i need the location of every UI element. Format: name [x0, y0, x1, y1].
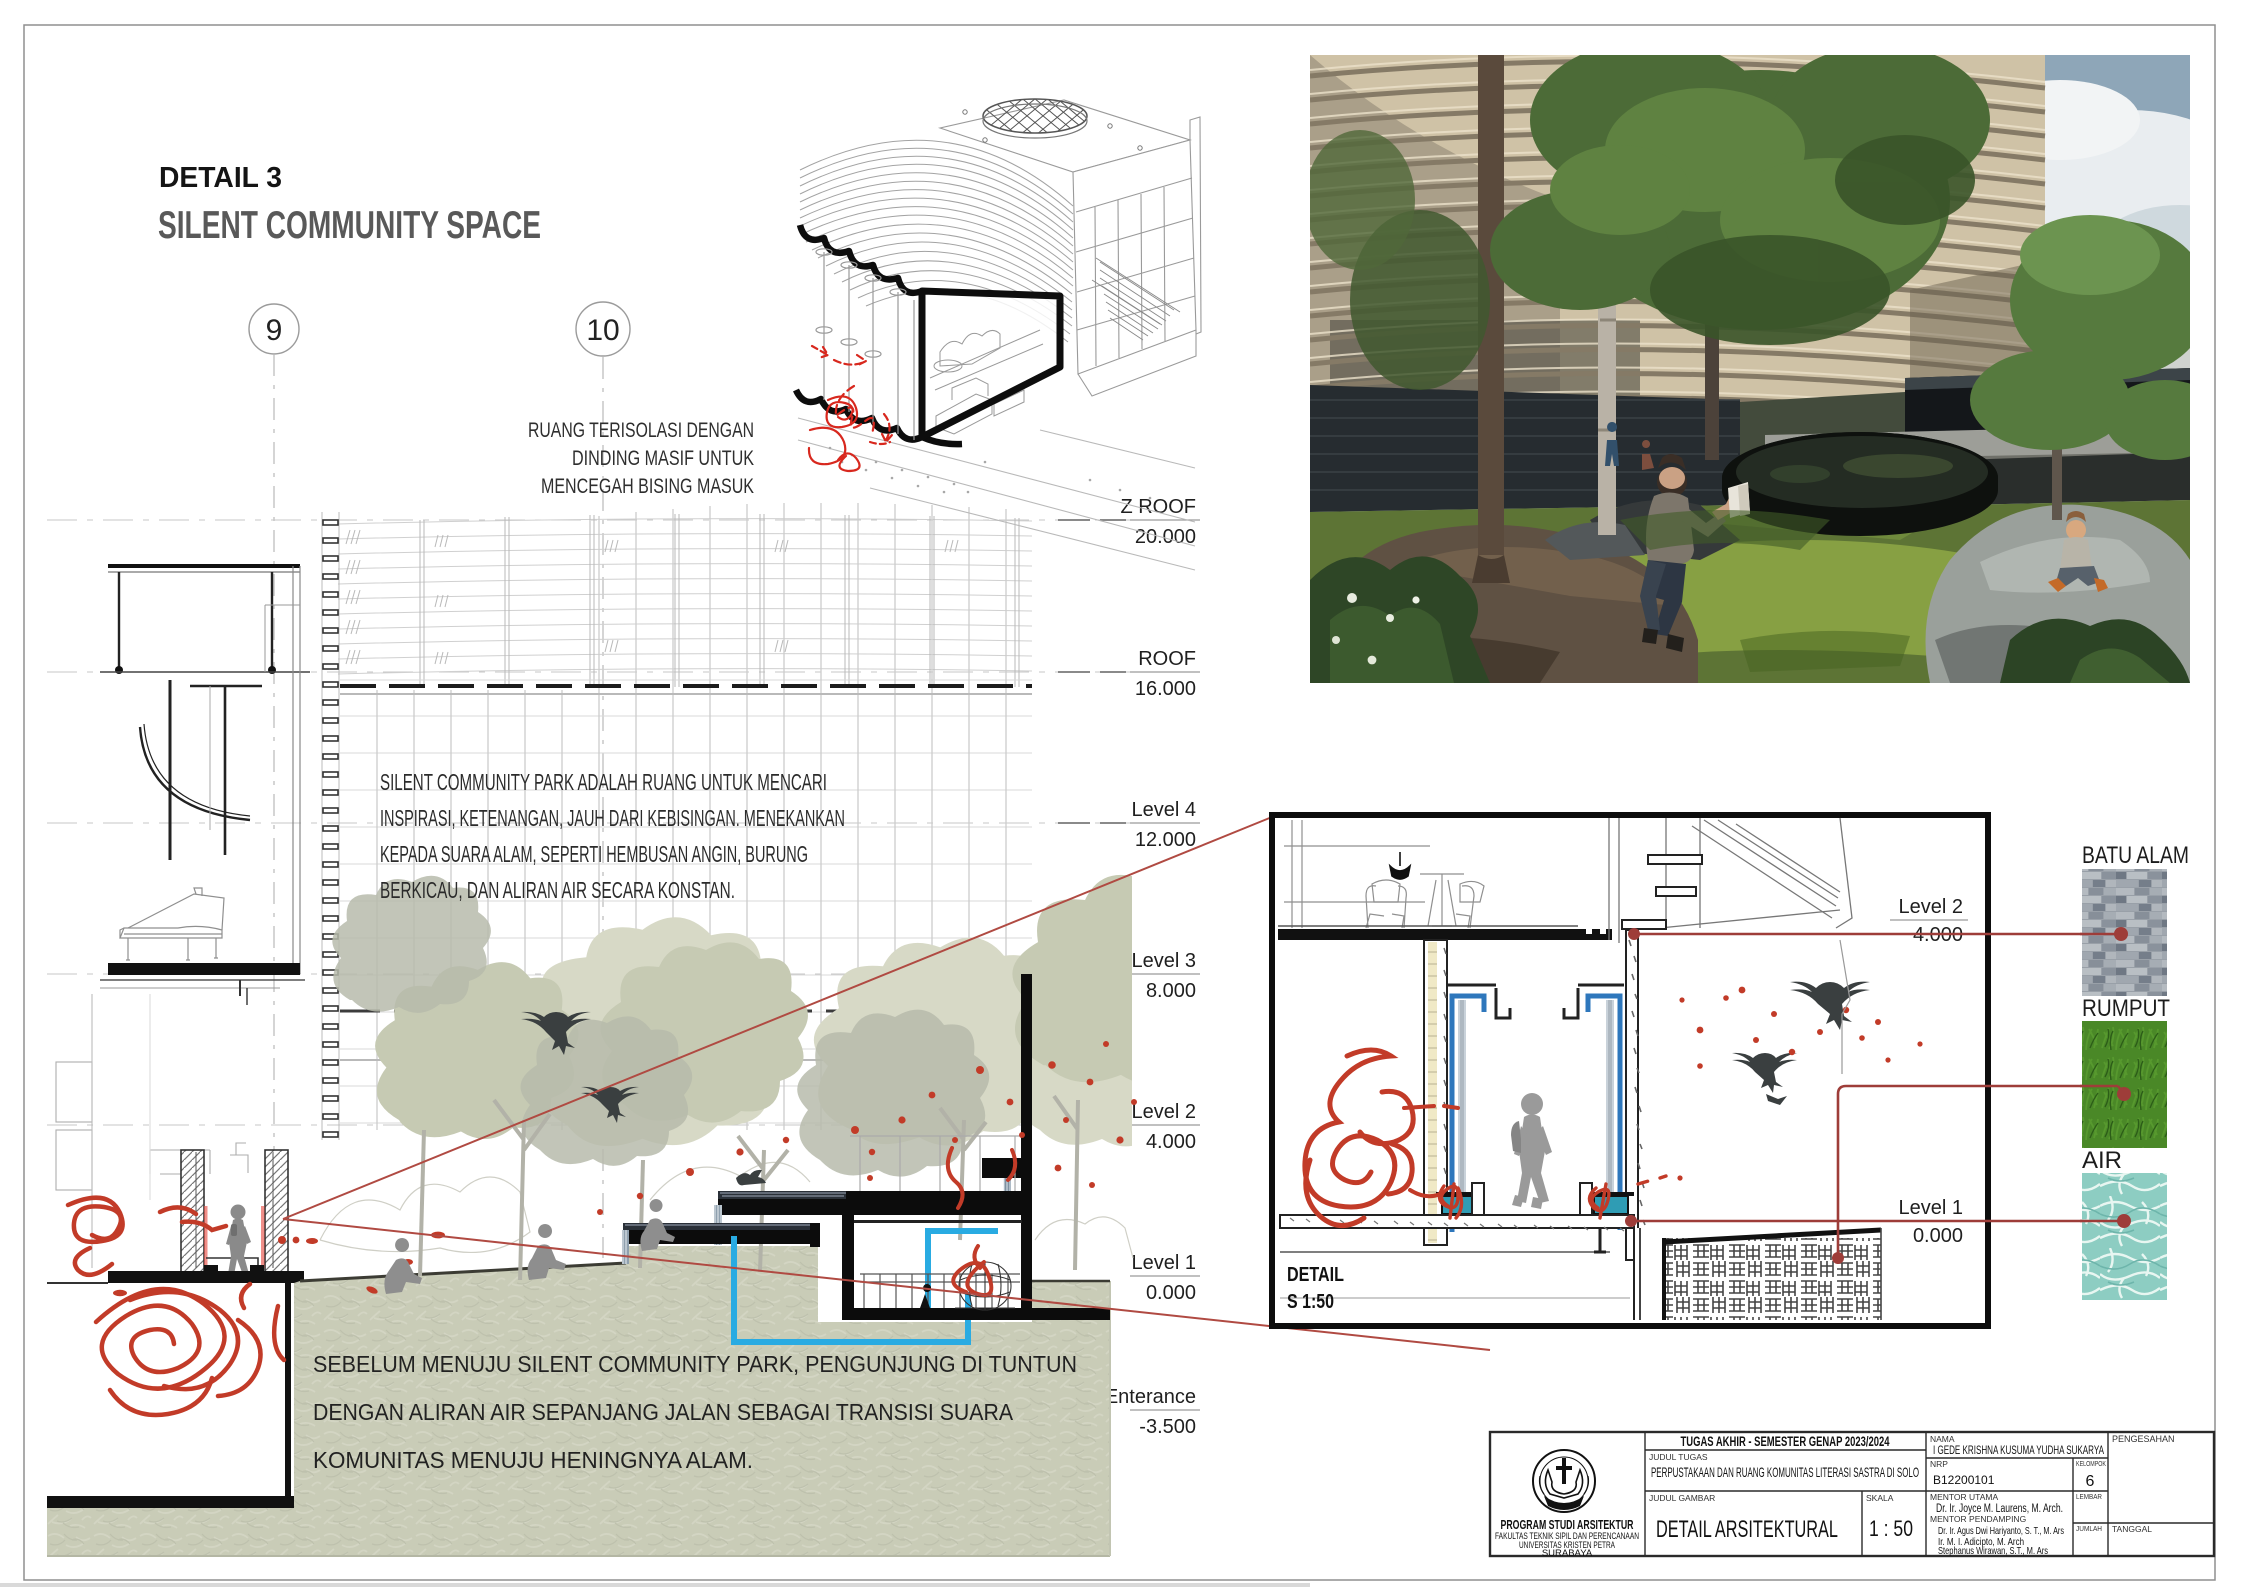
- svg-text:KEPADA SUARA ALAM, SEPERTI HEM: KEPADA SUARA ALAM, SEPERTI HEMBUSAN ANGI…: [380, 841, 808, 867]
- svg-text:DINDING MASIF UNTUK: DINDING MASIF UNTUK: [572, 447, 754, 470]
- svg-text:INSPIRASI, KETENANGAN, JAUH DA: INSPIRASI, KETENANGAN, JAUH DARI KEBISIN…: [380, 805, 845, 831]
- svg-text:DETAIL: DETAIL: [1287, 1264, 1344, 1286]
- svg-text:Level 1: Level 1: [1132, 1252, 1197, 1274]
- svg-text:MENCEGAH BISING MASUK: MENCEGAH BISING MASUK: [541, 475, 754, 498]
- svg-text:6: 6: [2086, 1473, 2095, 1490]
- svg-text:BATU ALAM: BATU ALAM: [2082, 842, 2189, 869]
- svg-text:10: 10: [586, 314, 619, 347]
- svg-text:LEMBAR: LEMBAR: [2076, 1494, 2102, 1501]
- svg-text:DENGAN ALIRAN AIR SEPANJANG JA: DENGAN ALIRAN AIR SEPANJANG JALAN SEBAGA…: [313, 1399, 1014, 1425]
- svg-text:ROOF: ROOF: [1138, 648, 1196, 670]
- svg-text:S 1:50: S 1:50: [1287, 1291, 1334, 1313]
- svg-text:SKALA: SKALA: [1866, 1493, 1894, 1503]
- svg-text:PERPUSTAKAAN DAN RUANG KOMUNIT: PERPUSTAKAAN DAN RUANG KOMUNITAS LITERAS…: [1651, 1464, 1919, 1480]
- svg-text:20.000: 20.000: [1135, 526, 1196, 548]
- svg-text:JUDUL GAMBAR: JUDUL GAMBAR: [1649, 1493, 1715, 1503]
- svg-text:AIR: AIR: [2082, 1147, 2122, 1174]
- svg-text:B12200101: B12200101: [1933, 1473, 1995, 1487]
- svg-text:KOMUNITAS MENUJU HENINGNYA ALA: KOMUNITAS MENUJU HENINGNYA ALAM.: [313, 1447, 753, 1473]
- svg-text:Level 2: Level 2: [1132, 1101, 1197, 1123]
- svg-text:I GEDE KRISHNA KUSUMA YUDHA SU: I GEDE KRISHNA KUSUMA YUDHA SUKARYA: [1933, 1443, 2104, 1457]
- svg-text:KELOMPOK: KELOMPOK: [2076, 1461, 2106, 1468]
- svg-text:0.000: 0.000: [1146, 1282, 1196, 1304]
- svg-text:Level 3: Level 3: [1132, 950, 1197, 972]
- svg-text:1 : 50: 1 : 50: [1869, 1516, 1913, 1541]
- svg-text:9: 9: [266, 314, 283, 347]
- svg-text:RUANG TERISOLASI DENGAN: RUANG TERISOLASI DENGAN: [528, 419, 754, 442]
- svg-text:DETAIL 3: DETAIL 3: [159, 162, 282, 194]
- svg-text:PROGRAM STUDI ARSITEKTUR: PROGRAM STUDI ARSITEKTUR: [1501, 1518, 1634, 1532]
- svg-text:DETAIL ARSITEKTURAL: DETAIL ARSITEKTURAL: [1656, 1516, 1838, 1543]
- svg-text:SILENT COMMUNITY PARK ADALAH R: SILENT COMMUNITY PARK ADALAH RUANG UNTUK…: [380, 769, 827, 795]
- svg-text:NRP: NRP: [1930, 1459, 1948, 1469]
- svg-text:RUMPUT: RUMPUT: [2082, 995, 2170, 1022]
- svg-text:16.000: 16.000: [1135, 678, 1196, 700]
- svg-text:MENTOR UTAMA: MENTOR UTAMA: [1930, 1492, 1998, 1502]
- svg-text:Level 2: Level 2: [1899, 896, 1964, 918]
- svg-text:8.000: 8.000: [1146, 980, 1196, 1002]
- svg-text:BERKICAU, DAN ALIRAN AIR SECAR: BERKICAU, DAN ALIRAN AIR SECARA KONSTAN.: [380, 877, 735, 903]
- svg-text:MENTOR PENDAMPING: MENTOR PENDAMPING: [1930, 1514, 2026, 1524]
- svg-text:Stephanus Wirawan, S.T., M. Ar: Stephanus Wirawan, S.T., M. Ars: [1938, 1545, 2048, 1557]
- svg-text:Level 4: Level 4: [1132, 799, 1197, 821]
- svg-text:TANGGAL: TANGGAL: [2112, 1524, 2152, 1534]
- svg-text:-3.500: -3.500: [1139, 1416, 1196, 1438]
- svg-text:JUMLAH: JUMLAH: [2076, 1526, 2102, 1533]
- svg-text:PENGESAHAN: PENGESAHAN: [2112, 1434, 2175, 1444]
- svg-text:12.000: 12.000: [1135, 829, 1196, 851]
- svg-text:Level 1: Level 1: [1899, 1197, 1964, 1219]
- svg-text:Z ROOF: Z ROOF: [1120, 496, 1196, 518]
- svg-text:JUDUL TUGAS: JUDUL TUGAS: [1649, 1452, 1708, 1462]
- svg-text:SEBELUM MENUJU SILENT COMMUNIT: SEBELUM MENUJU SILENT COMMUNITY PARK, PE…: [313, 1351, 1077, 1377]
- svg-text:TUGAS AKHIR - SEMESTER GENAP 2: TUGAS AKHIR - SEMESTER GENAP 2023/2024: [1681, 1434, 1890, 1449]
- svg-text:0.000: 0.000: [1913, 1225, 1963, 1247]
- svg-text:SILENT COMMUNITY SPACE: SILENT COMMUNITY SPACE: [158, 204, 541, 247]
- svg-text:SURABAYA: SURABAYA: [1542, 1548, 1593, 1559]
- svg-text:4.000: 4.000: [1146, 1131, 1196, 1153]
